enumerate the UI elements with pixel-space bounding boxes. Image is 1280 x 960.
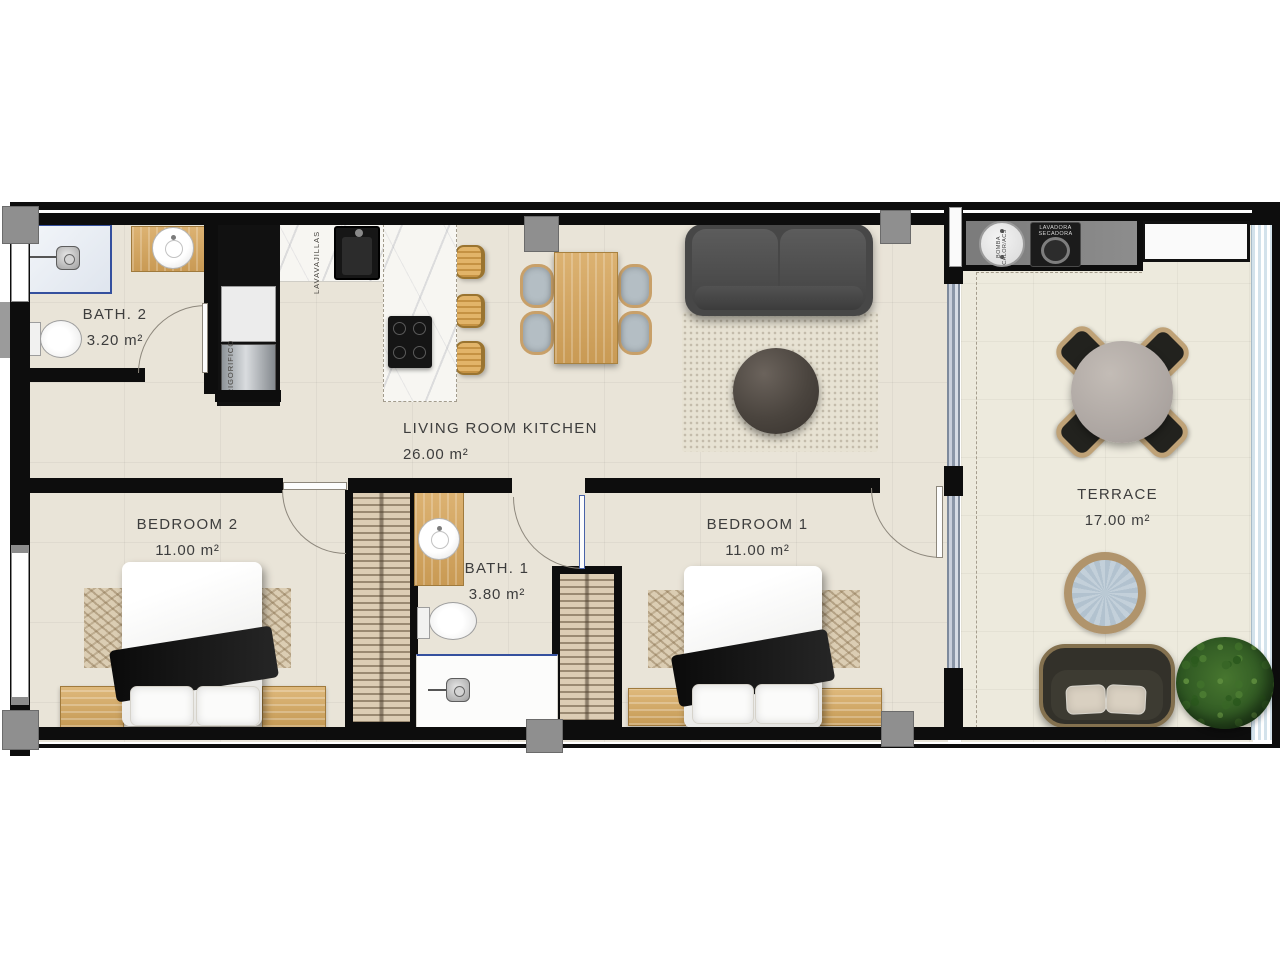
kitchen-island (383, 224, 457, 402)
heat-pump: BOMBA CALOR/ACS (979, 221, 1025, 267)
washbasin-bath-2 (152, 227, 194, 269)
window-frame (11, 545, 29, 552)
burner (393, 322, 406, 335)
shower-bath-1 (416, 654, 558, 728)
wall-top-slit (30, 210, 1252, 213)
nightstand (820, 688, 882, 726)
terrace-table (1071, 341, 1173, 443)
room-label-terrace: TERRACE 17.00 m² (1045, 482, 1190, 534)
room-label-bath-1: BATH. 1 3.80 m² (432, 556, 562, 608)
washbasin-bath-1 (418, 518, 460, 560)
room-label-bedroom-2: BEDROOM 2 11.00 m² (105, 512, 270, 564)
door-leaf-bedroom-2 (283, 482, 347, 490)
wardrobe-bedroom-1 (552, 566, 622, 728)
wardrobe-doors (353, 492, 410, 722)
bar-stool (455, 341, 485, 375)
nightstand (262, 686, 326, 728)
heat-pump-label: BOMBA CALOR/ACS (996, 224, 1008, 270)
terrace-overhang-dashed-line-top (976, 272, 1142, 273)
dining-table (554, 252, 618, 364)
cabinet-mid (221, 286, 276, 342)
bed-pillow (196, 686, 260, 726)
sliding-glass-door-bedroom-1 (947, 496, 960, 668)
dishwasher-label: LAVAVAJILLAS (312, 228, 321, 294)
sliding-glass-door (947, 284, 960, 466)
wardrobe-doors (560, 574, 614, 720)
kitchen-sink-basin (342, 237, 372, 275)
partition-door-frame (949, 207, 962, 267)
kitchen-faucet-icon (355, 229, 363, 237)
sofa (685, 224, 873, 316)
pillar (880, 210, 911, 244)
burner (413, 322, 426, 335)
wall-middle-c (585, 478, 880, 493)
wall-middle-b (348, 478, 512, 493)
terrace-sofa-pillow (1065, 684, 1106, 715)
wall-bottom-thick (10, 727, 1272, 740)
washer-dryer: LAVADORA SECADORA (1030, 222, 1081, 267)
nightstand (60, 686, 124, 728)
pillar (2, 710, 39, 750)
sofa-seat-edge (695, 286, 863, 310)
wardrobe-bedroom-2 (345, 490, 418, 728)
toilet-tank-bath-1 (417, 607, 430, 639)
window-bath-2 (11, 240, 29, 302)
pillar (2, 206, 39, 244)
terrace-overhang-dashed-line (976, 272, 977, 738)
partition-terrace-mid (944, 466, 963, 496)
pillar (881, 711, 914, 747)
plant (1176, 637, 1274, 729)
burner (413, 346, 426, 359)
shower-arm (30, 256, 58, 258)
window-bedroom-2 (11, 552, 29, 698)
cooktop (388, 316, 432, 368)
kitchen-column-end (215, 390, 281, 402)
terrace-round-rug (1064, 552, 1146, 634)
door-leaf-bedroom-1 (936, 486, 943, 558)
bar-stool (455, 245, 485, 279)
bed-pillow (130, 686, 194, 726)
room-label-living: LIVING ROOM KITCHEN 26.00 m² (403, 416, 663, 468)
bed-pillow (755, 684, 819, 724)
coffee-table (733, 348, 819, 434)
washer-dryer-label: LAVADORA SECADORA (1031, 225, 1080, 237)
room-label-bedroom-1: BEDROOM 1 11.00 m² (675, 512, 840, 564)
window-terrace-top (1142, 221, 1250, 262)
burner (393, 346, 406, 359)
window-frame (11, 698, 29, 705)
floor-plan: { "plan": { "type": "apartment-floor-pla… (0, 0, 1280, 960)
dining-chair (618, 311, 652, 355)
bed-pillow (692, 684, 754, 724)
bar-stool (455, 294, 485, 328)
wall-right-edge (1272, 202, 1280, 748)
wall-bath-2-horizontal (10, 368, 145, 382)
dining-chair (618, 264, 652, 308)
door-leaf-bath-2 (202, 303, 208, 373)
wall-bottom-thin (10, 744, 1272, 748)
partition-terrace-lower (944, 668, 963, 740)
shower-head-icon (56, 246, 80, 270)
dining-chair (520, 264, 554, 308)
terrace-sofa-pillow (1105, 684, 1146, 715)
washer-drum-icon (1041, 237, 1070, 264)
door-leaf-bath-1 (579, 495, 585, 569)
kitchen-sink (334, 226, 380, 280)
pillar (526, 719, 563, 753)
wall-middle-a (28, 478, 283, 493)
shower-head-icon (446, 678, 470, 702)
dining-chair (520, 311, 554, 355)
utility-closet: BOMBA CALOR/ACS LAVADORA SECADORA (960, 214, 1143, 271)
room-label-bath-2: BATH. 2 3.20 m² (50, 302, 180, 354)
pillar (524, 216, 559, 252)
